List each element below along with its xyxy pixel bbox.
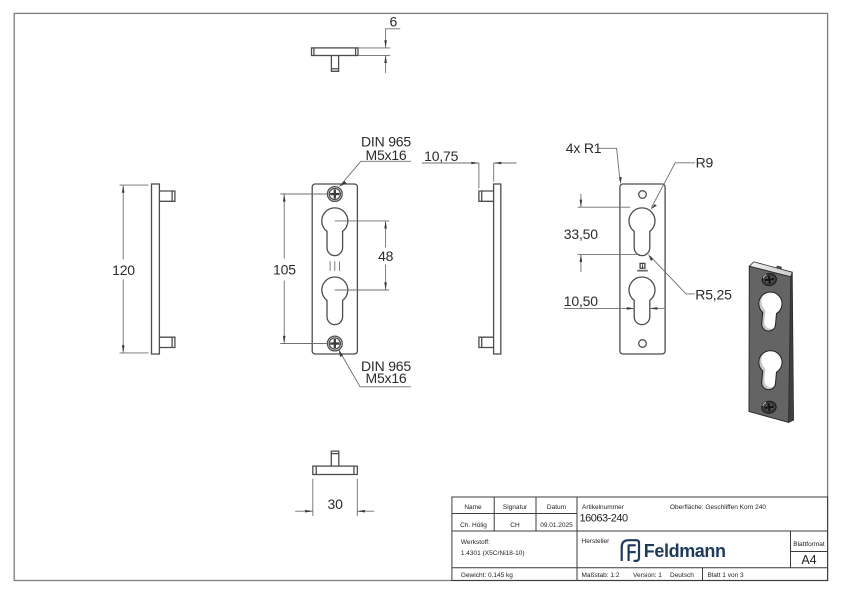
svg-text:M5x16: M5x16 — [365, 370, 406, 386]
svg-text:Artikelnummer: Artikelnummer — [582, 504, 625, 511]
svg-text:R9: R9 — [696, 155, 714, 171]
svg-text:10,75: 10,75 — [424, 148, 458, 164]
svg-text:Deutsch: Deutsch — [670, 572, 694, 579]
svg-text:33,50: 33,50 — [564, 226, 598, 242]
svg-text:Ch. Hölig: Ch. Hölig — [460, 522, 487, 529]
svg-text:Hersteller: Hersteller — [582, 538, 611, 545]
svg-text:Datum: Datum — [547, 504, 566, 511]
svg-text:105: 105 — [273, 262, 296, 278]
svg-text:R5,25: R5,25 — [695, 286, 732, 302]
svg-text:M5x16: M5x16 — [365, 147, 406, 163]
svg-text:120: 120 — [112, 262, 135, 278]
svg-text:Blatt 1 von 3: Blatt 1 von 3 — [708, 572, 745, 579]
svg-text:Name: Name — [464, 504, 482, 511]
svg-text:A4: A4 — [801, 553, 816, 567]
svg-text:09.01.2025: 09.01.2025 — [540, 522, 573, 529]
svg-text:Feldmann: Feldmann — [644, 541, 726, 561]
svg-text:10,50: 10,50 — [564, 293, 598, 309]
svg-text:48: 48 — [378, 248, 394, 264]
svg-text:Blattformat: Blattformat — [793, 541, 825, 548]
svg-text:Oberfläche: Geschliffen Korn: Oberfläche: Geschliffen Korn 240 — [670, 504, 766, 511]
svg-text:30: 30 — [328, 496, 344, 512]
svg-text:1.4301 (X5CrNi18-10): 1.4301 (X5CrNi18-10) — [461, 550, 525, 557]
svg-text:Gewicht: 0.145 kg: Gewicht: 0.145 kg — [461, 572, 513, 579]
svg-text:16063-240: 16063-240 — [580, 512, 628, 524]
svg-text:Signatur: Signatur — [503, 504, 528, 511]
svg-text:Maßstab: 1:2: Maßstab: 1:2 — [582, 572, 620, 579]
svg-text:4x R1: 4x R1 — [566, 140, 602, 156]
svg-text:Version: 1: Version: 1 — [633, 572, 662, 579]
svg-text:CH: CH — [510, 522, 520, 529]
svg-text:Werkstoff:: Werkstoff: — [461, 539, 490, 546]
svg-text:6: 6 — [390, 14, 398, 30]
